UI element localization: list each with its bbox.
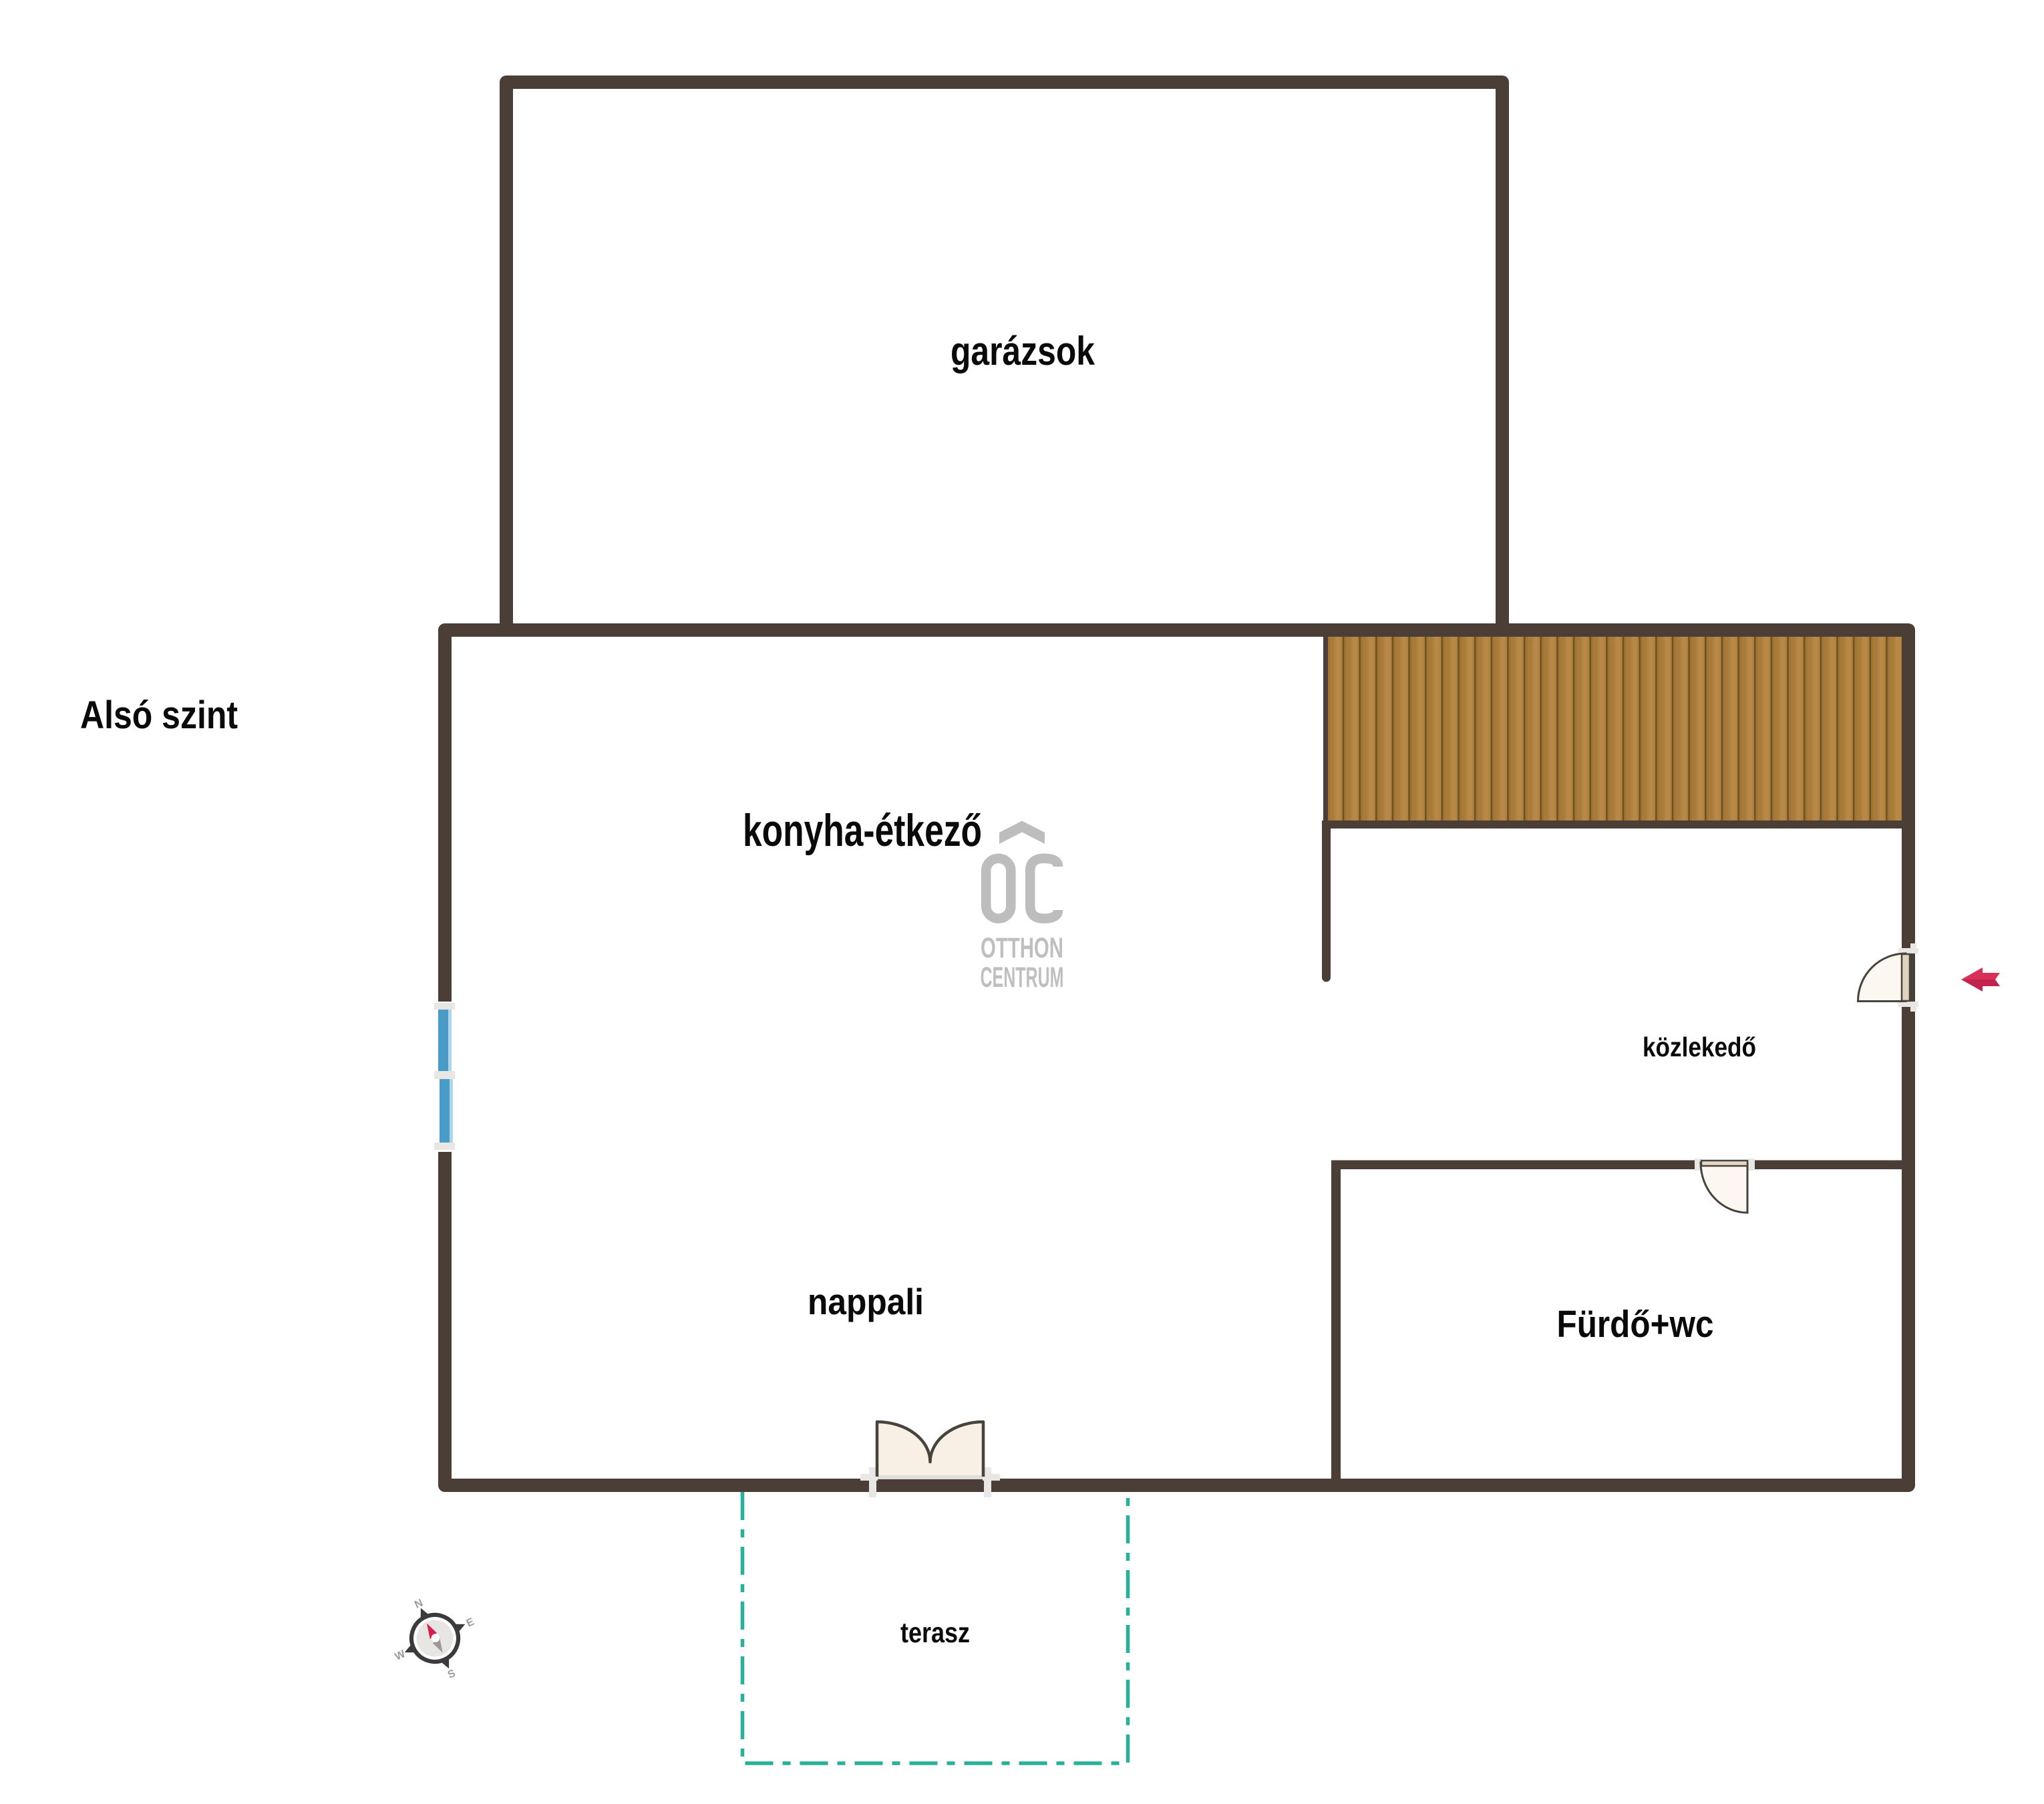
svg-text:OTTHON: OTTHON — [981, 932, 1063, 964]
svg-text:nappali: nappali — [808, 1281, 924, 1322]
svg-text:Alsó szint: Alsó szint — [80, 694, 238, 737]
svg-text:közlekedő: közlekedő — [1643, 1032, 1756, 1062]
svg-text:konyha-étkező: konyha-étkező — [743, 805, 982, 856]
svg-text:CENTRUM: CENTRUM — [981, 961, 1064, 994]
svg-text:Fürdő+wc: Fürdő+wc — [1557, 1303, 1714, 1346]
svg-text:garázsok: garázsok — [951, 329, 1095, 373]
svg-text:terasz: terasz — [900, 1617, 970, 1649]
